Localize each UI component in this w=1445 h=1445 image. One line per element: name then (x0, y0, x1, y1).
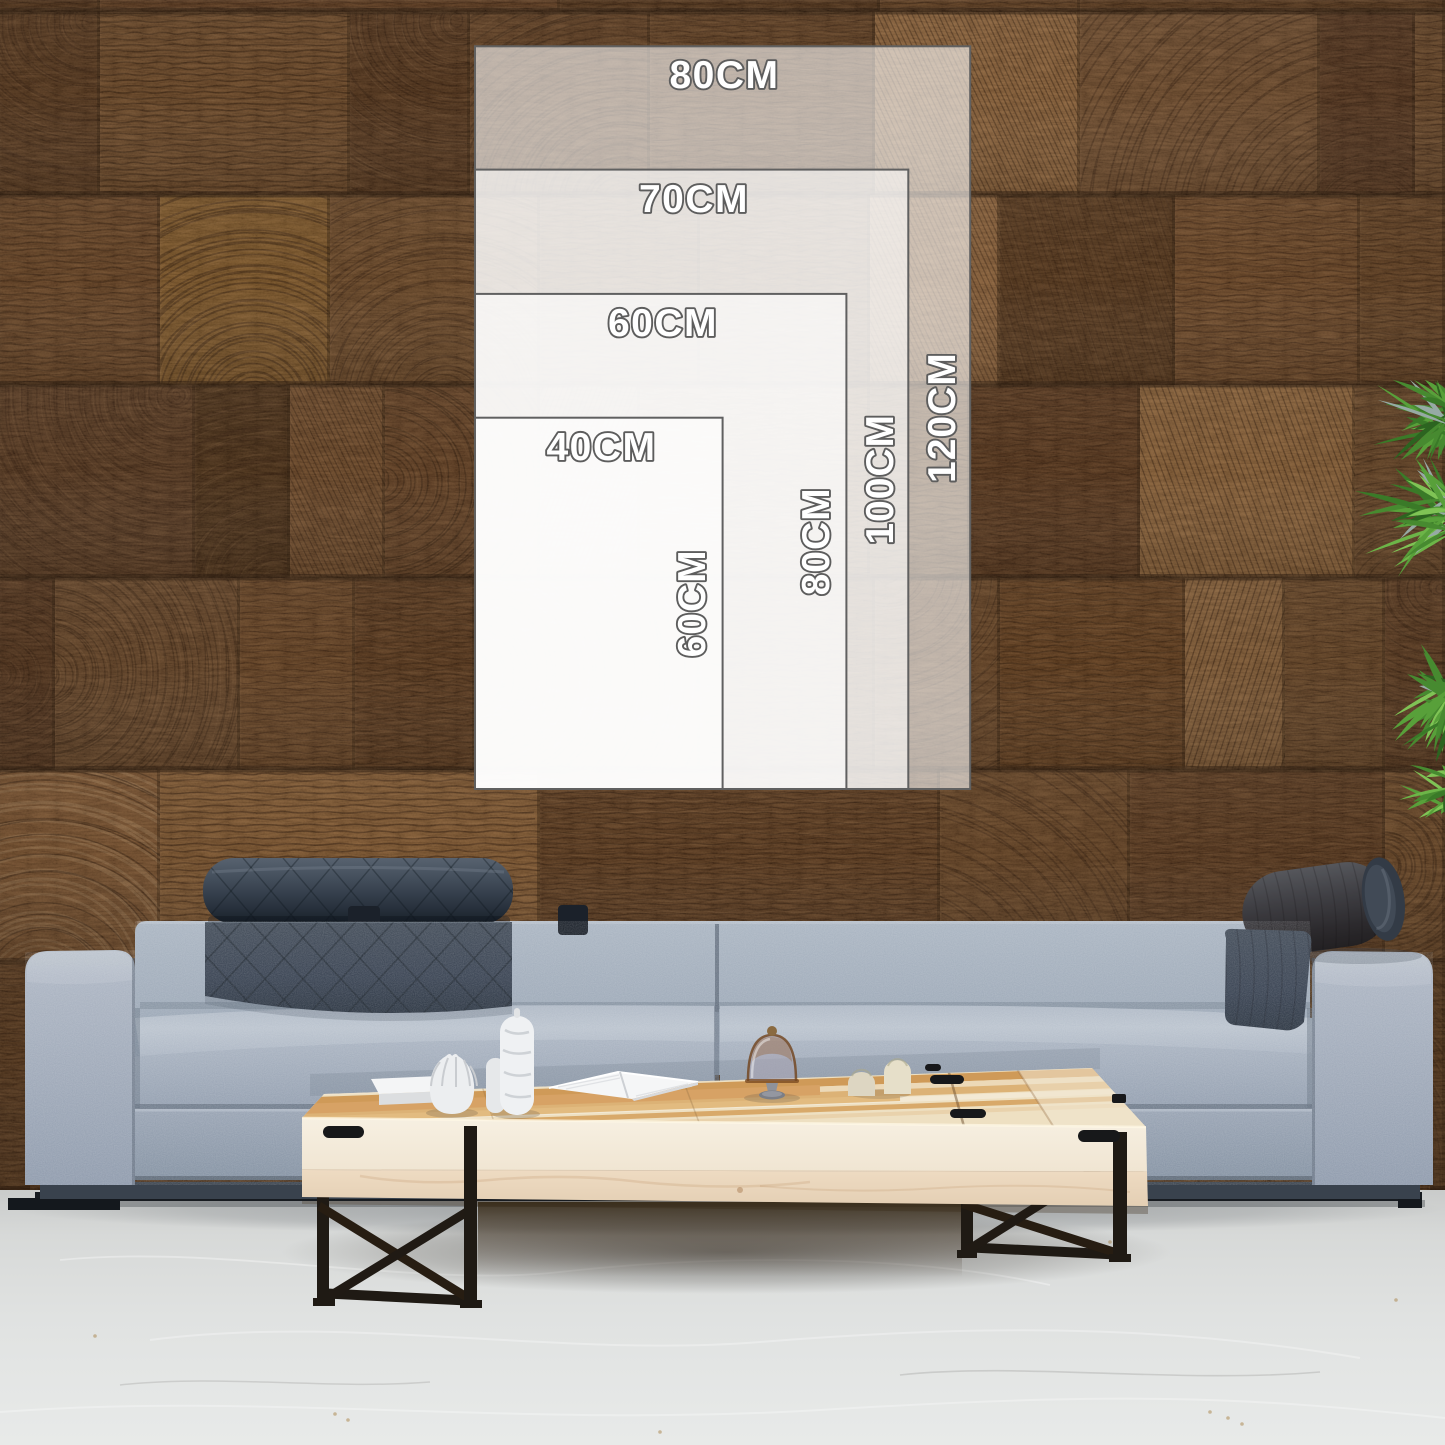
svg-text:60CM: 60CM (608, 302, 718, 345)
svg-text:120CM: 120CM (921, 352, 964, 483)
svg-text:40CM: 40CM (546, 426, 656, 469)
svg-text:70CM: 70CM (639, 178, 749, 221)
svg-text:80CM: 80CM (795, 487, 838, 595)
svg-text:80CM: 80CM (669, 54, 779, 97)
svg-text:60CM: 60CM (671, 549, 714, 657)
svg-text:100CM: 100CM (859, 414, 902, 545)
